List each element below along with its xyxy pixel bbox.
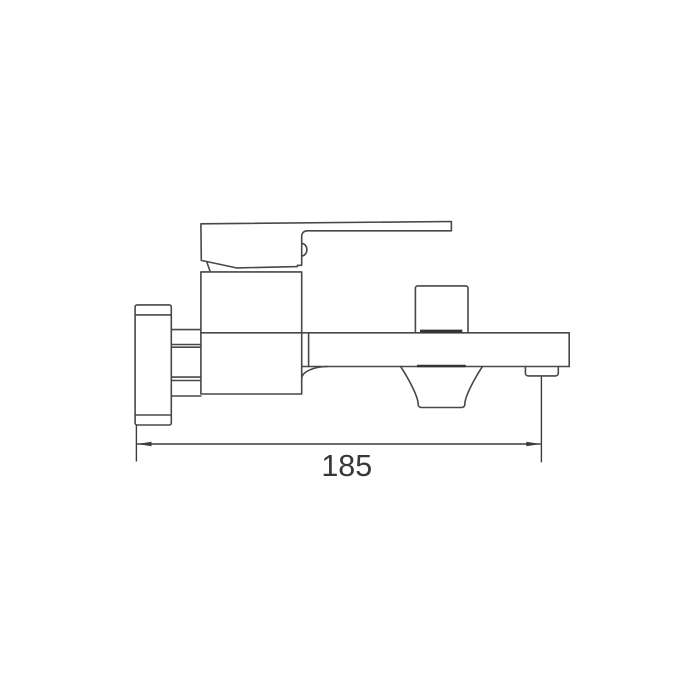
- svg-text:185: 185: [321, 449, 372, 483]
